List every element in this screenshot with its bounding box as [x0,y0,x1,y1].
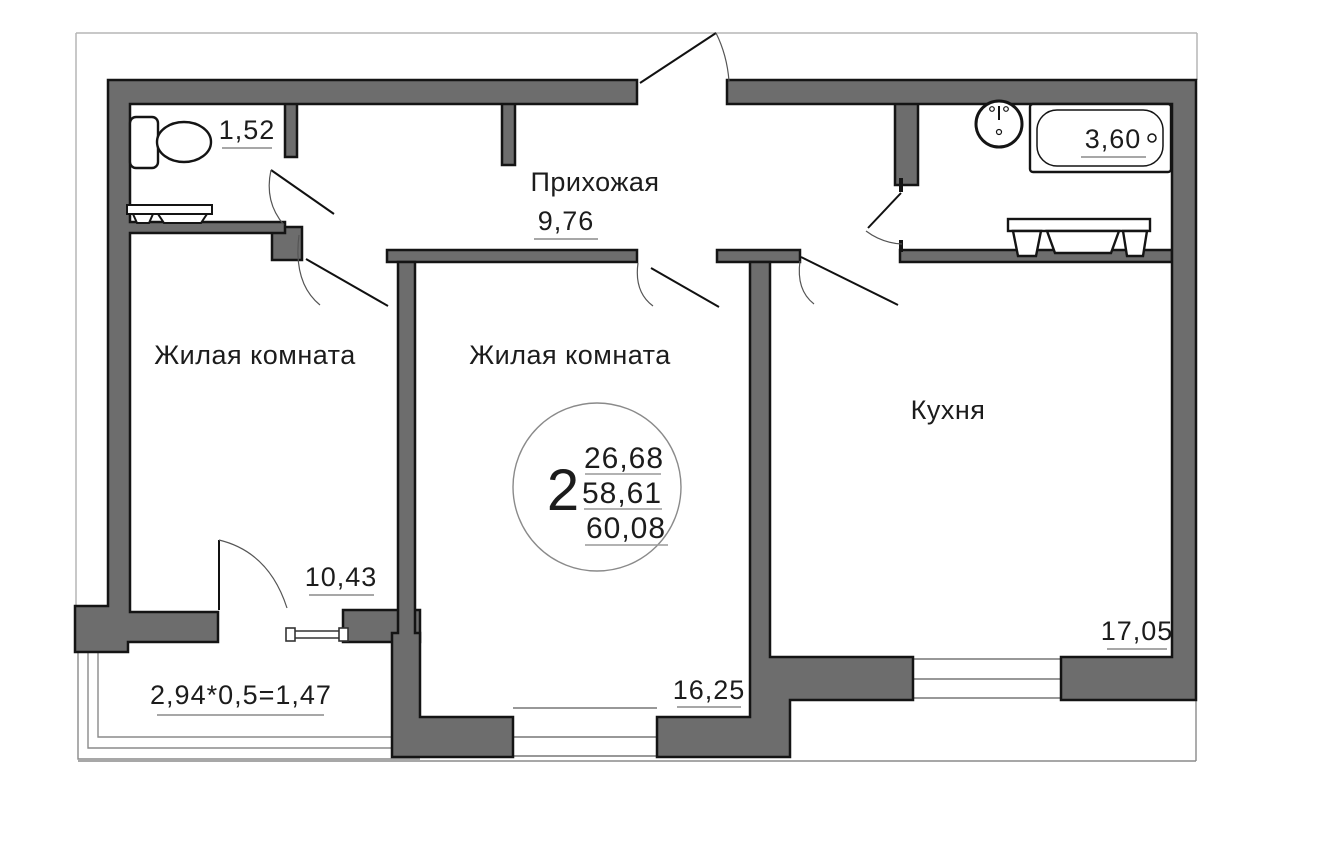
kitchen-door-arc [799,261,814,304]
toilet-bowl [157,122,211,162]
living2-area-label: 16,25 [673,675,746,705]
balcony-calc-label: 2,94*0,5=1,47 [150,680,332,710]
living2-door-arc [637,263,653,306]
wc-fixtures [127,117,212,223]
living1-area-label: 10,43 [305,562,378,592]
toilet-tank [130,117,158,168]
living2-door-leaf [651,268,719,307]
kitchen-area-label: 17,05 [1101,616,1174,646]
stamp-total-area: 60,08 [586,512,666,545]
hallway-area-label: 9,76 [538,206,595,236]
kitchen-door-leaf [801,257,898,305]
stamp-apartment-area: 58,61 [582,477,662,510]
window-living2 [513,708,657,756]
stamp-rooms-count: 2 [547,458,579,523]
wall-pier-bathroom [895,92,918,185]
wall-living1-living2 [392,262,513,757]
entrance-door-leaf [640,33,716,83]
wall-hallway-kitchen-left [717,250,800,262]
living1-door-leaf [306,259,388,306]
wc-area-label: 1,52 [219,115,276,145]
floorplan-drawing: 2 26,68 58,61 60,08 1,52 Прихожая 9,76 3… [0,0,1325,846]
kitchen-name-label: Кухня [911,395,986,425]
washbasin-drain [997,130,1002,135]
living2-name-label: Жилая комната [469,340,671,370]
hallway-name-label: Прихожая [530,167,659,197]
kitchen-counter [1008,219,1150,256]
window-kitchen [913,659,1061,698]
wc-washstand [127,205,212,223]
bathroom-door-jambs [899,178,903,252]
bathroom-area-label: 3,60 [1085,124,1142,154]
washbasin-handle-left [990,107,995,112]
wc-door-leaf [271,170,334,214]
apartment-stamp: 2 26,68 58,61 60,08 [513,403,681,571]
washbasin-handle-right [1004,107,1009,112]
entrance-door-arc [716,33,729,81]
living1-name-label: Жилая комната [154,340,356,370]
labels: 1,52 Прихожая 9,76 3,60 Жилая комната 10… [150,115,1173,715]
window-living1 [286,628,348,641]
bathroom-door-leaf [868,193,901,228]
bathroom-fixtures [976,101,1171,172]
bathroom-door-arc [866,231,902,244]
wall-hallway-living2 [387,250,637,262]
stamp-living-area: 26,68 [584,442,664,475]
doors [219,33,902,610]
floorplan-page: 2 26,68 58,61 60,08 1,52 Прихожая 9,76 3… [0,0,1325,846]
balcony-door-arc [219,540,287,608]
